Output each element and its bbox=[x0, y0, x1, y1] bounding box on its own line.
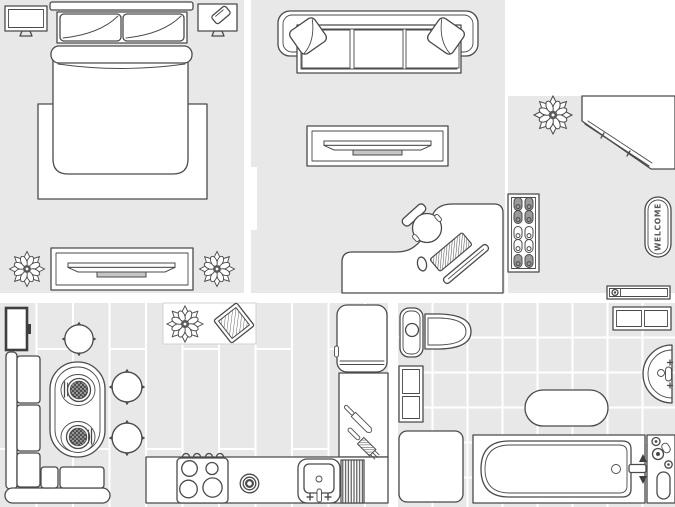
place-setting-bottom bbox=[61, 422, 95, 453]
pillow-right bbox=[123, 14, 184, 41]
media-console-tv[interactable] bbox=[51, 248, 193, 290]
bed[interactable] bbox=[38, 2, 207, 199]
wall-shelf[interactable] bbox=[607, 286, 670, 299]
potted-plant-left[interactable] bbox=[10, 252, 45, 287]
headboard bbox=[50, 2, 193, 10]
tv-left[interactable] bbox=[5, 6, 47, 36]
nightstand-tv-with-phone[interactable] bbox=[198, 4, 237, 36]
burner bbox=[180, 480, 198, 498]
welcome-mat-text: WELCOME bbox=[654, 203, 663, 251]
burner bbox=[203, 478, 222, 497]
toilet-bowl bbox=[425, 314, 471, 349]
pillow-left bbox=[60, 14, 121, 41]
potted-plant bbox=[167, 306, 203, 342]
sofa[interactable] bbox=[278, 11, 478, 73]
stove[interactable] bbox=[177, 458, 228, 503]
burner bbox=[206, 463, 218, 475]
place-setting-top bbox=[61, 375, 95, 406]
shower-mat[interactable] bbox=[399, 431, 463, 502]
storage-cabinet[interactable] bbox=[399, 366, 423, 422]
fridge[interactable] bbox=[335, 305, 388, 372]
bedroom-door-gap bbox=[251, 167, 257, 230]
burner bbox=[182, 461, 198, 477]
towel-shelf[interactable] bbox=[613, 307, 671, 330]
shower-controls[interactable] bbox=[647, 435, 675, 503]
welcome-mat[interactable]: WELCOME bbox=[645, 197, 671, 257]
duvet bbox=[53, 57, 188, 174]
sink[interactable] bbox=[298, 459, 340, 503]
duvet-top-fold bbox=[51, 46, 192, 63]
potted-plant-right[interactable] bbox=[200, 252, 235, 287]
potted-plant[interactable] bbox=[534, 96, 572, 134]
rug-with-plant[interactable] bbox=[163, 303, 256, 344]
seat-cushion bbox=[354, 30, 403, 68]
wall-tv[interactable] bbox=[6, 308, 31, 350]
bathtub[interactable] bbox=[473, 435, 647, 503]
shoe-rack[interactable] bbox=[508, 194, 539, 272]
floor-plan: WELCOME bbox=[0, 0, 675, 507]
tv-stand[interactable] bbox=[307, 126, 448, 166]
oval-rug[interactable] bbox=[525, 390, 608, 426]
drainboard[interactable] bbox=[341, 460, 364, 503]
oval-dining-table[interactable] bbox=[50, 362, 105, 457]
